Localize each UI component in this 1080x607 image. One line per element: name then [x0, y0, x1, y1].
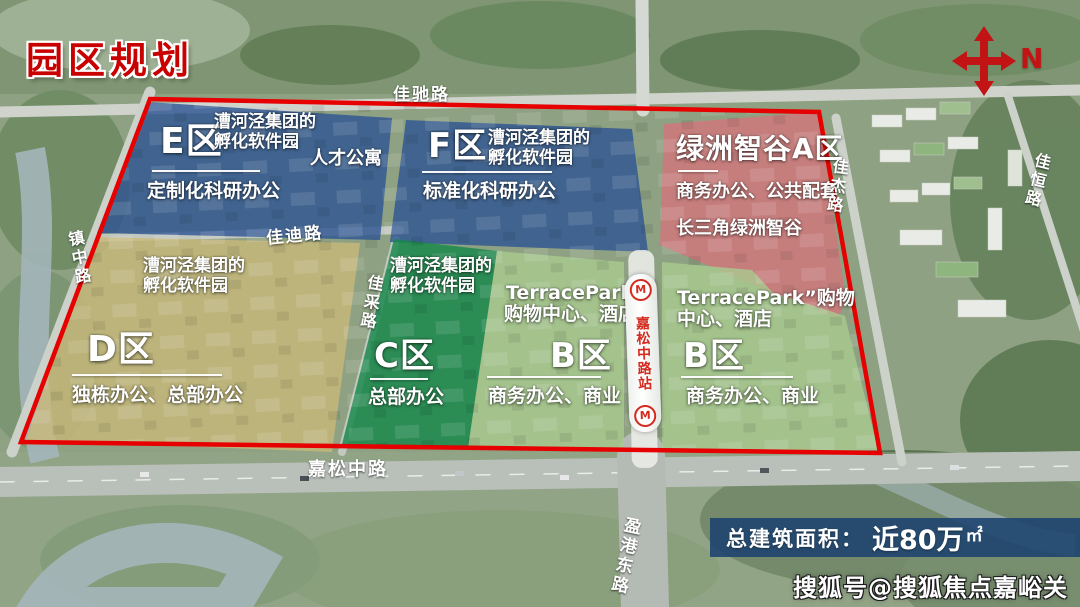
zone-b2-function: 商务办公、商业	[686, 385, 819, 408]
page-title: 园区规划	[26, 30, 194, 84]
zone-f-name: F区	[428, 126, 487, 167]
zone-e-divider	[152, 170, 260, 172]
zone-f-divider	[422, 171, 552, 173]
zone-f-function: 标准化科研办公	[423, 180, 556, 203]
zone-d-divider	[72, 374, 222, 376]
shanghai-metro-logo-icon: M	[634, 405, 657, 428]
zone-a-name: 绿洲智谷A区	[676, 132, 844, 166]
road-label-jiachi: 佳驰路	[393, 80, 450, 105]
zone-b2-divider	[681, 376, 793, 378]
zone-c-name: C区	[374, 336, 435, 377]
total-area-unit: ㎡	[966, 521, 983, 546]
zone-a-subtitle: 长三角绿洲智谷	[676, 218, 802, 240]
compass-north-label: N	[1020, 42, 1043, 75]
zone-e-function: 定制化科研办公	[147, 180, 280, 203]
sohu-watermark: 搜狐号@搜狐焦点嘉峪关站	[793, 568, 1080, 607]
shanghai-metro-logo-icon: M	[629, 279, 652, 302]
zone-c-function: 总部办公	[368, 386, 444, 409]
zone-b2-mall-line1: TerracePark”购物	[677, 287, 855, 310]
road-label-jiasong: 嘉松中路	[308, 455, 388, 481]
zone-d-group: 漕河泾集团的 孵化软件园	[143, 256, 245, 297]
zone-b1-mall-line2: 购物中心、酒店	[504, 303, 637, 326]
metro-station-ribbon: M 嘉松中路站 M	[624, 273, 661, 432]
zone-e-apartment: 人才公寓	[310, 148, 382, 170]
zone-b1-name: B区	[550, 336, 612, 377]
zone-e-group: 漕河泾集团的 孵化软件园	[214, 112, 316, 153]
zone-f-group: 漕河泾集团的 孵化软件园	[488, 128, 590, 169]
metro-station-name: 嘉松中路站	[632, 315, 655, 391]
zone-c-group: 漕河泾集团的 孵化软件园	[390, 256, 492, 297]
zone-b2-mall-line2: 中心、酒店	[677, 308, 772, 331]
zone-d-name: D区	[87, 328, 155, 371]
zone-c-divider	[370, 378, 428, 380]
masterplan-map: 园区规划 N E区 漕河泾集团的 孵化软件园 人才公寓 定制化科研办公 F区 漕…	[0, 0, 1080, 607]
total-area-value: 近80万	[872, 518, 964, 557]
zone-b1-divider	[487, 376, 601, 378]
zone-b2-name: B区	[683, 336, 745, 377]
total-area-bar: 总建筑面积： 近80万 ㎡	[710, 518, 1080, 557]
zone-b1-function: 商务办公、商业	[488, 385, 621, 408]
zone-d-function: 独栋办公、总部办公	[72, 384, 243, 407]
total-area-label: 总建筑面积：	[726, 523, 864, 553]
compass-icon	[952, 26, 1016, 96]
zone-a-function: 商务办公、公共配套	[676, 181, 838, 203]
zone-a-divider	[678, 170, 718, 172]
